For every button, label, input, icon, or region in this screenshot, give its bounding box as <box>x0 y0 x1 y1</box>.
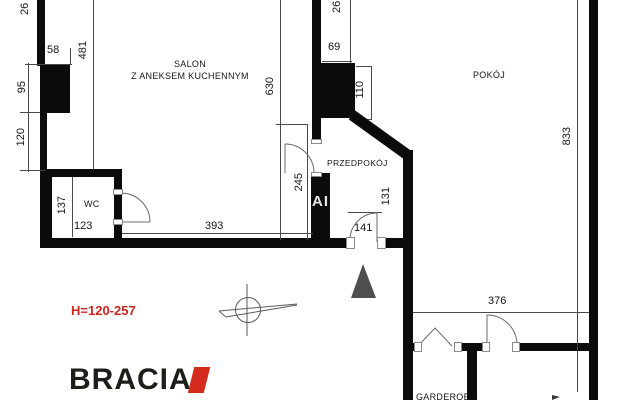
room-label-wc: WC <box>84 199 100 209</box>
dim-line-630 <box>280 0 281 240</box>
jamb-fold-left <box>414 342 422 352</box>
dim-line-393 <box>122 233 313 234</box>
folding-door-symbol <box>418 328 452 346</box>
wall-wc-right <box>114 177 122 238</box>
dim-393: 393 <box>205 220 223 232</box>
jamb-wc-bottom <box>113 219 123 225</box>
room-label-przedpokoj: PRZEDPOKÓJ <box>327 158 388 168</box>
floor-plan: 26 58 481 95 120 137 123 393 630 245 141… <box>0 0 620 400</box>
wall-pokoj-niche <box>317 63 355 118</box>
wall-wc-top <box>40 169 122 177</box>
room-door-swing-arc <box>487 315 517 345</box>
jamb-salon-bottom <box>311 172 322 177</box>
dim-tick-245 <box>276 124 308 125</box>
dim-line-110 <box>371 66 372 120</box>
logo-line1: BRACIA <box>69 363 192 397</box>
dim-245: 245 <box>293 173 305 191</box>
wall-diagonal <box>352 115 409 156</box>
dim-line-481 <box>93 0 94 170</box>
dim-69: 69 <box>328 41 340 53</box>
wall-salon-left-niche <box>40 64 70 113</box>
jamb-wc-top <box>113 189 123 195</box>
dim-line-95-120 <box>28 63 29 172</box>
wall-wc-left <box>40 169 52 248</box>
room-label-garderoba: GARDEROBA <box>416 392 476 400</box>
dim-141: 141 <box>354 222 372 234</box>
dim-137: 137 <box>56 196 68 214</box>
dim-tick-110-top <box>356 66 372 67</box>
dim-95: 95 <box>16 81 28 93</box>
dim-481: 481 <box>77 41 89 59</box>
wc-door-swing-arc <box>121 193 150 222</box>
jamb-room-left <box>482 342 490 352</box>
wall-salon-left-lower <box>40 112 47 172</box>
dim-123: 123 <box>74 220 92 232</box>
dim-tick-120 <box>20 170 45 171</box>
wall-outer-right <box>589 0 598 400</box>
wall-bottom-left <box>40 238 350 248</box>
wall-salon-left-top <box>37 0 45 66</box>
dim-833: 833 <box>561 127 573 145</box>
dim-line-376 <box>413 312 589 313</box>
jamb-fold-right <box>454 342 462 352</box>
dim-tick-110-bottom <box>356 119 372 120</box>
jamb-hall-left <box>346 237 355 249</box>
entrance-arrow-icon <box>351 264 376 298</box>
jamb-room-right <box>512 342 520 352</box>
dim-line-833 <box>577 0 578 392</box>
dim-tick-58 <box>70 48 71 65</box>
dim-110: 110 <box>354 81 366 99</box>
dim-120: 120 <box>15 128 27 146</box>
dim-line-26b <box>350 0 351 63</box>
wall-hall-right <box>403 150 413 400</box>
watermark-fragment: AI <box>312 193 329 210</box>
wall-divider-b <box>462 343 484 351</box>
dim-line-141 <box>348 212 382 213</box>
dim-line-245 <box>307 124 308 240</box>
dim-line-123 <box>72 177 73 237</box>
north-arrow-icon <box>219 284 297 336</box>
dim-58: 58 <box>47 44 59 56</box>
small-arrow-mark <box>552 395 560 400</box>
dim-top-left-cut: 26 <box>19 0 31 15</box>
wall-divider-c <box>520 343 589 351</box>
room-label-salon-line2: Z ANEKSEM KUCHENNYM <box>128 71 252 81</box>
room-label-pokoj: POKÓJ <box>473 70 505 80</box>
jamb-salon-top <box>311 139 322 144</box>
salon-door-swing-arc <box>285 144 314 173</box>
logo-line2: SADURSCY <box>69 395 261 400</box>
room-label-salon-line1: SALON <box>140 59 240 69</box>
dim-630: 630 <box>264 77 276 95</box>
dim-line-69 <box>322 61 352 62</box>
jamb-hall-right <box>377 237 386 249</box>
dim-131: 131 <box>380 187 392 205</box>
ceiling-height-note: H=120-257 <box>71 303 136 318</box>
dim-line-58 <box>25 64 72 65</box>
dim-tick-95 <box>20 112 40 113</box>
dim-pokoj-top-cut: 26 <box>331 0 343 13</box>
dim-376: 376 <box>488 295 506 307</box>
